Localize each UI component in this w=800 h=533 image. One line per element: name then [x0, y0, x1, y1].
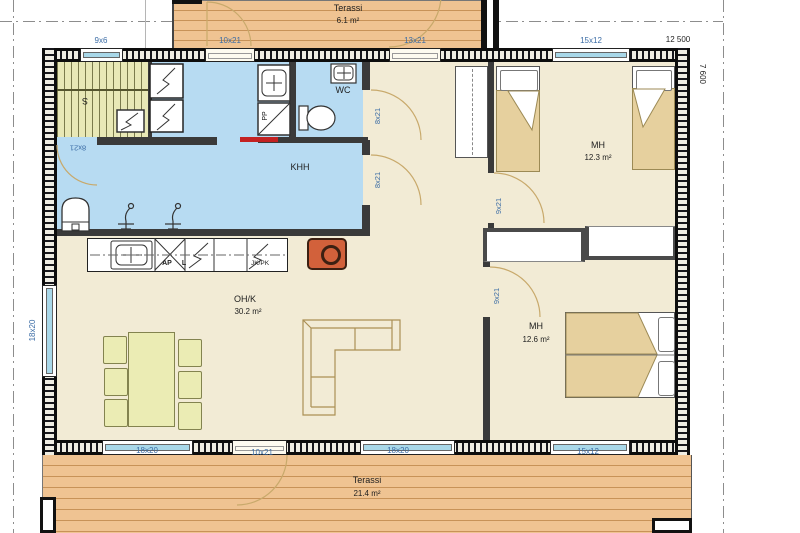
bed-pillow	[658, 317, 675, 352]
mh2-area: 12.6 m²	[512, 336, 560, 344]
terrace-side-wall	[481, 0, 499, 48]
mh1-label: MH	[578, 141, 618, 150]
dim-door-wc: 8x21	[374, 98, 382, 134]
ohk-area: 30.2 m²	[218, 308, 278, 316]
sauna-label: S	[78, 96, 92, 105]
mh2-label: MH	[516, 322, 556, 331]
wall-mh2-2	[483, 317, 490, 440]
wardrobe-rail	[472, 69, 473, 155]
terrace-top-rail	[172, 0, 202, 4]
closet-bedroom1	[585, 226, 677, 260]
mh1-area: 12.3 m²	[575, 154, 621, 162]
boundary-line-left	[13, 0, 14, 533]
wall-mh1-1	[488, 62, 494, 173]
dim-overall-depth: 7 600	[698, 53, 706, 95]
chair	[104, 368, 128, 396]
door-terrace-top-left	[205, 48, 255, 62]
window-left	[42, 285, 57, 377]
terrace-top-label: Terassi	[320, 4, 376, 13]
sauna-benches	[57, 62, 148, 137]
dim-top-window-sauna: 9x6	[79, 37, 123, 45]
closet-bedroom2	[483, 228, 585, 262]
dim-door-khh: 8x21	[374, 162, 382, 198]
wall-hall-1	[362, 62, 370, 90]
bed-pillow	[636, 70, 672, 91]
chair	[103, 336, 127, 364]
wall-pp-wc	[289, 62, 296, 140]
dim-bottom-window-dining: 18x20	[125, 447, 169, 455]
boundary-line-right	[723, 0, 724, 533]
dining-table	[128, 332, 175, 427]
chair	[178, 402, 202, 430]
chair	[178, 339, 202, 367]
sauna-bench-edge	[57, 89, 148, 91]
bed-blanket	[496, 90, 540, 172]
wall-sauna-right	[148, 62, 152, 138]
chair	[178, 371, 202, 399]
khh-label: KHH	[280, 163, 320, 172]
dim-overall-width: 12 500	[656, 36, 700, 44]
dim-bottom-window-mh2: 15x12	[566, 448, 610, 456]
bed-pillow	[500, 70, 538, 91]
dim-door-sauna: 8x21	[63, 144, 93, 152]
pp-label: PP	[262, 106, 269, 126]
dim-top-window-mh1: 15x12	[569, 37, 613, 45]
dim-top-door-entrance: 13x21	[393, 37, 437, 45]
wall-hall-2	[362, 140, 370, 155]
floor-plan: Terassi 6.1 m² Terassi 21.4 m² S WC KHH …	[0, 0, 800, 533]
bed-pillow	[658, 361, 675, 396]
beam-marker-red	[240, 137, 278, 142]
wc-label: WC	[330, 86, 356, 95]
terrace-step-left	[40, 497, 56, 533]
terrace-step-right	[652, 518, 692, 533]
wall-mh2-1	[483, 262, 490, 267]
wall-sauna-bottom	[97, 137, 217, 145]
bed-blanket	[632, 88, 675, 170]
wall-kitchen	[57, 229, 370, 236]
terrace-bottom-label: Terassi	[339, 476, 395, 485]
terrace-top-area: 6.1 m²	[322, 17, 374, 25]
dim-door-mh2: 9x21	[493, 278, 501, 314]
wardrobe	[455, 66, 488, 158]
fridge-label: JK/PK	[245, 261, 275, 268]
chair	[104, 399, 128, 427]
window-sauna	[80, 48, 123, 62]
dim-bottom-door: 10x21	[240, 449, 284, 457]
ohk-label: OH/K	[215, 295, 275, 304]
door-entrance	[389, 48, 441, 62]
dishwasher-label: AP	[158, 260, 176, 267]
dim-left-window: 18x20	[29, 308, 37, 353]
dim-bottom-window-living: 18x20	[376, 447, 420, 455]
wall-exterior-right	[675, 48, 690, 455]
window-bedroom1	[552, 48, 630, 62]
fireplace	[307, 238, 347, 270]
dim-top-door-left: 10x21	[208, 37, 252, 45]
reference-line	[145, 0, 146, 48]
terrace-bottom-area: 21.4 m²	[341, 490, 393, 498]
fireplace-flue-ring	[321, 245, 341, 265]
stove-label: L	[179, 260, 189, 267]
wall-exterior-left	[42, 48, 57, 455]
dim-door-mh1: 9x21	[495, 188, 503, 224]
